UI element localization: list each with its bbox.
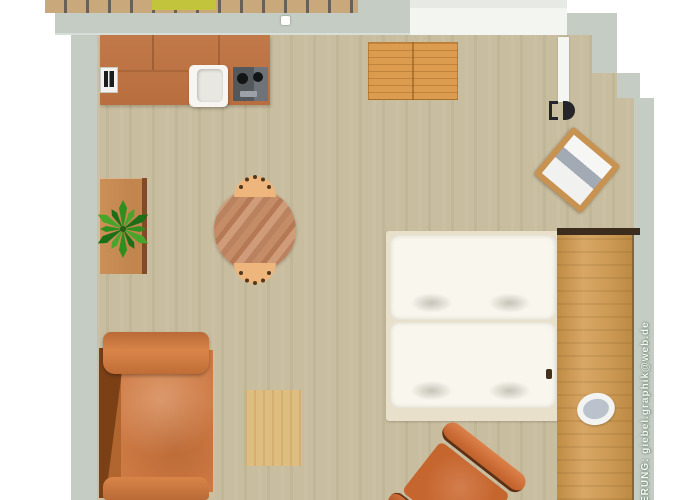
wall-top (355, 0, 410, 13)
dining-chair-north (232, 167, 278, 197)
sofa-armrest-top (103, 332, 209, 374)
outside-area (640, 73, 700, 98)
door-fitting-icon (549, 101, 576, 120)
wall-top-exterior (410, 0, 567, 8)
sink-basin (197, 69, 223, 102)
balcony-door-handle (281, 16, 290, 25)
entrance-mat (368, 42, 458, 100)
door-fitting-stop (563, 101, 575, 120)
outside-area (617, 0, 700, 73)
kitchen-sink (189, 65, 228, 107)
sofa-armrest-bottom (103, 477, 209, 500)
burner-icon (237, 73, 248, 84)
floor-plan-canvas: ERUNG: giebel.graphik@web.de (0, 0, 700, 500)
dining-table (214, 189, 296, 271)
burner-icon (253, 72, 263, 82)
dining-chair-south (232, 263, 278, 293)
wall-left (71, 35, 97, 500)
closet-handle (546, 369, 552, 379)
wall-step (617, 73, 640, 98)
balcony-mat (152, 0, 216, 10)
counter-division (218, 35, 220, 66)
stove-control (240, 91, 257, 97)
sofa (97, 330, 213, 500)
basin-bowl (581, 397, 611, 422)
closet (557, 235, 634, 500)
plant-icon (92, 198, 154, 260)
wall-step (592, 33, 617, 73)
coffee-maker (100, 67, 118, 93)
double-bed (386, 231, 560, 421)
counter-division (152, 35, 154, 70)
wall-step (567, 13, 617, 35)
rug (245, 390, 302, 466)
closet-top-edge (557, 228, 640, 235)
wall-top (55, 13, 410, 35)
stove (233, 67, 268, 101)
mattress-top (390, 235, 556, 320)
door-fitting-bracket (549, 101, 558, 120)
door-partition (558, 37, 569, 102)
outside-area (654, 98, 700, 500)
armchair (400, 418, 550, 500)
mattress-bottom (390, 322, 556, 408)
armchair-body (382, 415, 533, 500)
coffee-maker-body (104, 71, 114, 87)
wall-top-white (410, 8, 567, 35)
watermark-text: ERUNG: giebel.graphik@web.de (640, 321, 651, 500)
